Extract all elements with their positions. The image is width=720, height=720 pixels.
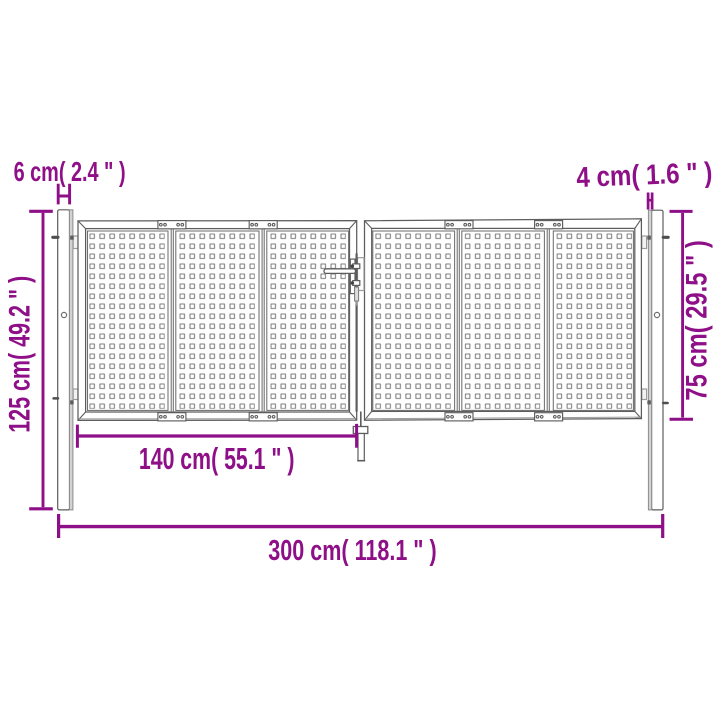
svg-text:140 cm( 55.1 " ): 140 cm( 55.1 " )	[139, 442, 295, 476]
svg-text:300 cm( 118.1 " ): 300 cm( 118.1 " )	[268, 535, 436, 567]
svg-text:6 cm( 2.4 " ): 6 cm( 2.4 " )	[14, 156, 126, 187]
svg-text:125 cm( 49.2 " ): 125 cm( 49.2 " )	[4, 276, 37, 433]
svg-text:4 cm( 1.6 " ): 4 cm( 1.6 " )	[576, 157, 713, 194]
svg-text:75 cm( 29.5 " ): 75 cm( 29.5 " )	[681, 240, 714, 400]
